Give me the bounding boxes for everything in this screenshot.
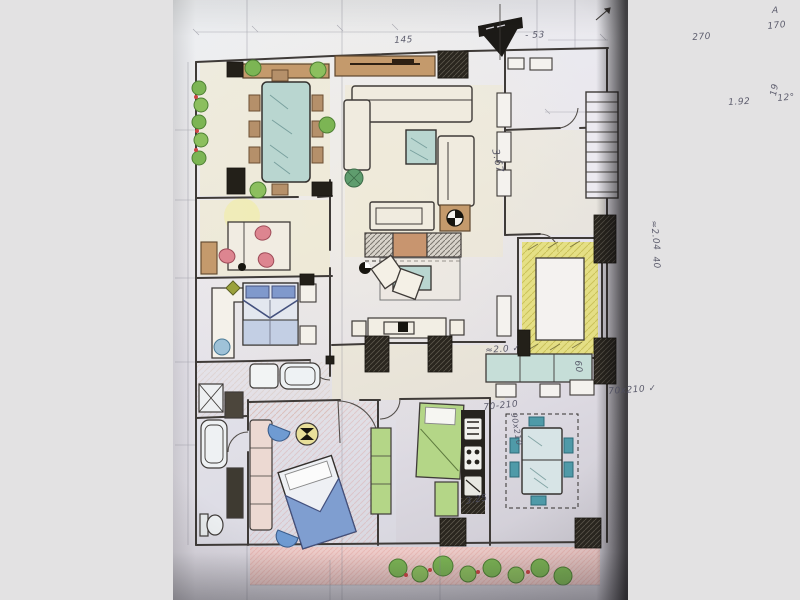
chair-blue [214,339,230,355]
breakfast-corner [506,414,578,508]
kitchen-counter-left [371,428,391,514]
door-entry [560,108,578,128]
reading-corner [359,255,460,300]
nightstand [300,326,316,344]
floor-plan-drawing [173,0,628,600]
annotation-6: 19 [769,83,781,97]
door-kitchen [380,399,400,419]
fireplace-unit [438,51,468,78]
plant [319,117,335,133]
console-row [352,318,464,338]
kitchen-unit [435,482,458,516]
entry-cabinets [508,58,552,70]
washbasin [250,364,278,388]
round-table [296,423,318,445]
staircase [586,92,618,198]
plant [250,182,266,198]
utility-counter [486,354,594,397]
floor-plan-photo [173,0,628,600]
terrace [250,547,600,585]
plant [310,62,326,78]
master-bedroom [212,281,316,358]
appliance-column [461,410,485,514]
side-table-lamp [440,205,470,231]
nightstand [300,284,316,302]
annotation-10: ≈2.04 [648,220,661,251]
vanity-dark [225,392,243,418]
screenshot-stage: 145- 53270170A191.9212°3.67≈2.0440≈2.0 ✓… [0,0,800,600]
annotation-3: 270 [692,32,711,43]
annotation-11: 40 [650,256,661,269]
tv-console [365,233,461,261]
plant [245,60,261,76]
annotation-5: A [772,6,779,16]
annotation-7: 1.92 [728,97,751,108]
annotation-4: 170 [767,20,787,32]
coffee-table [406,130,436,164]
double-bed [243,283,298,345]
annotation-8: 12° [777,92,795,103]
elevator-core [522,241,598,354]
toilet [200,514,223,536]
kitchen [371,403,485,516]
plant-living [345,169,363,187]
kitchen-island [416,403,464,479]
dining-table [262,82,310,182]
bath-cabinet [227,468,243,518]
study-cabinet [201,242,217,274]
tall-wardrobe [250,420,272,530]
desk-lamp [238,263,246,271]
section-marker-a [596,8,610,20]
